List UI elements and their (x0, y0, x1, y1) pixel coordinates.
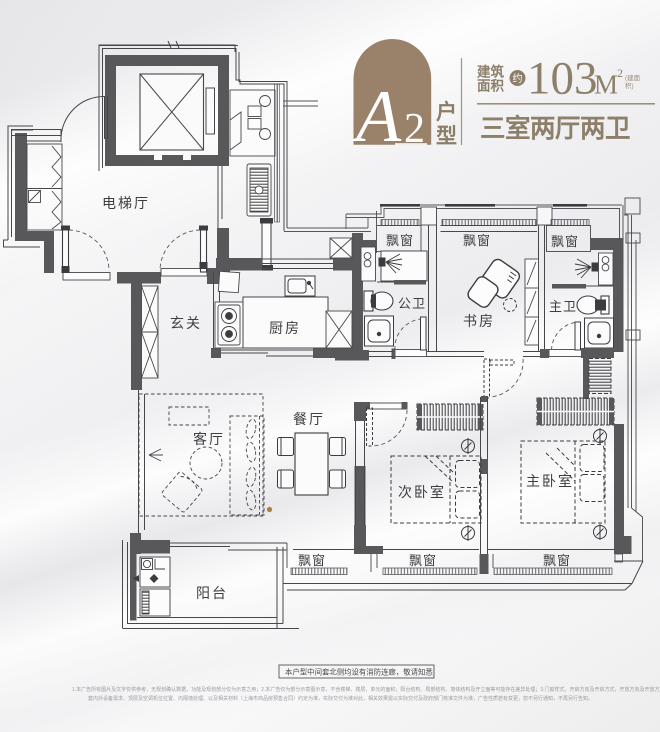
svg-text:三室两厅两卫: 三室两厅两卫 (480, 114, 630, 143)
svg-text:飘窗: 飘窗 (298, 553, 326, 568)
svg-text:约: 约 (513, 72, 523, 85)
svg-text:本户型中间套北侧均设有消防连廊，敬请知悉: 本户型中间套北侧均设有消防连廊，敬请知悉 (285, 667, 433, 676)
svg-text:公卫: 公卫 (398, 296, 426, 311)
svg-text:次卧室: 次卧室 (398, 484, 446, 500)
svg-text:2: 2 (404, 106, 425, 152)
svg-text:主卫: 主卫 (549, 299, 577, 314)
svg-text:主卧室: 主卧室 (526, 473, 574, 489)
svg-text:餐厅: 餐厅 (293, 411, 325, 427)
svg-text:电梯厅: 电梯厅 (102, 195, 150, 211)
svg-text:型: 型 (436, 125, 457, 148)
svg-text:飘窗: 飘窗 (551, 234, 579, 249)
svg-text:玄关: 玄关 (170, 315, 202, 331)
svg-text:户: 户 (436, 100, 457, 124)
svg-text:M: M (594, 70, 618, 100)
svg-text:面积: 面积 (477, 78, 504, 94)
svg-text:飘窗: 飘窗 (543, 553, 571, 568)
svg-text:103: 103 (527, 53, 598, 105)
svg-text:A: A (351, 76, 402, 158)
svg-text:书房: 书房 (463, 313, 495, 329)
svg-text:套内外设备需求、顶层及空调机位位置、内隔墙处理、以及相关材料: 套内外设备需求、顶层及空调机位位置、内隔墙处理、以及相关材料（上海市商品房预售合… (88, 695, 593, 702)
svg-text:积): 积) (625, 81, 634, 90)
svg-text:飘窗: 飘窗 (409, 553, 437, 568)
svg-text:建筑: 建筑 (476, 64, 504, 80)
svg-text:厨房: 厨房 (269, 320, 301, 336)
svg-text:飘窗: 飘窗 (386, 233, 414, 248)
svg-text:2: 2 (617, 66, 623, 80)
svg-text:(建面: (建面 (625, 73, 641, 82)
svg-text:客厅: 客厅 (193, 431, 225, 447)
svg-text:阳台: 阳台 (196, 585, 228, 601)
svg-text:飘窗: 飘窗 (463, 233, 491, 248)
svg-text:1.本广告所有图片及文字仅供参考，无规划确认数据，功能及规划: 1.本广告所有图片及文字仅供参考，无规划确认数据，功能及规划部分仅为示意之用；2… (72, 686, 660, 693)
